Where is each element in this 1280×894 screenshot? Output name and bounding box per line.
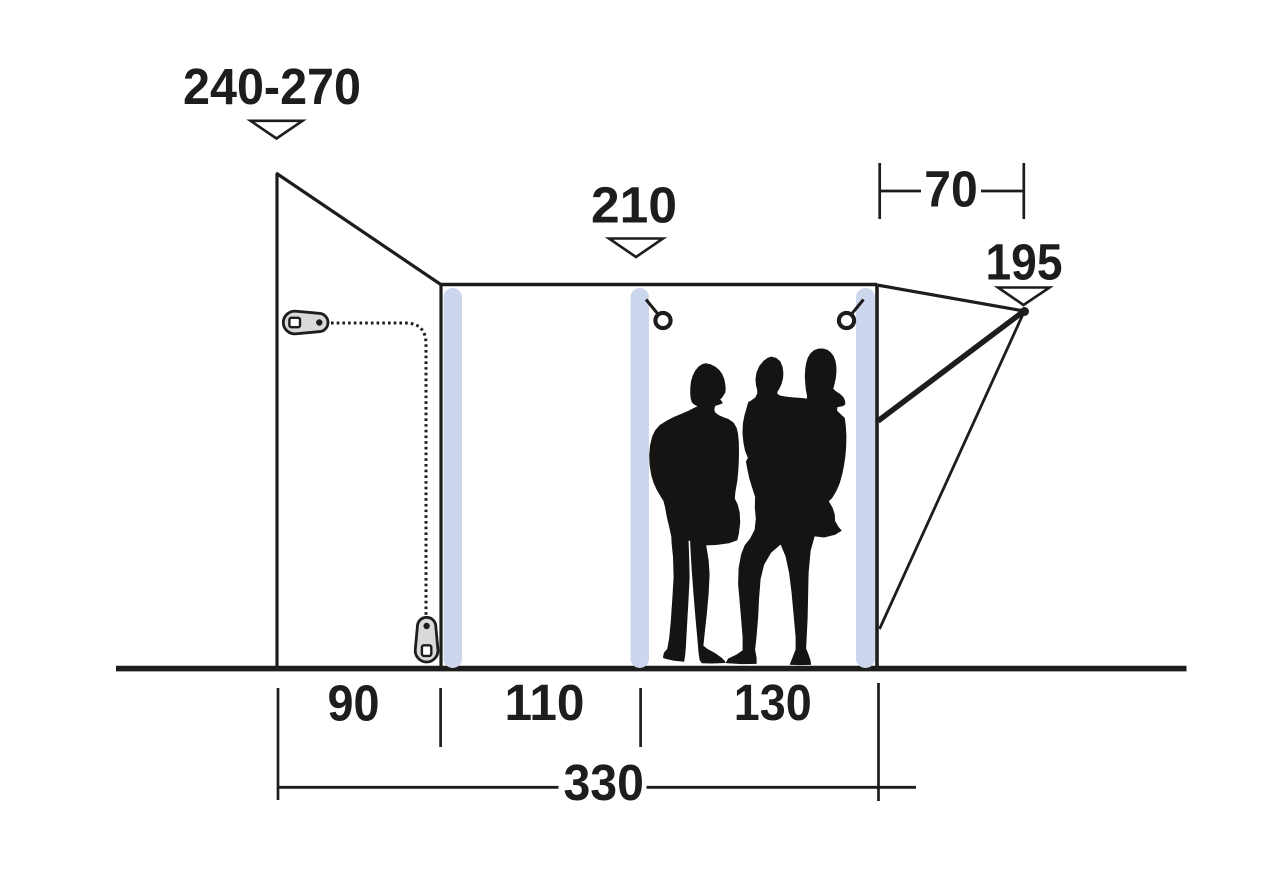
svg-text:330: 330 <box>563 754 644 811</box>
svg-text:195: 195 <box>986 234 1063 291</box>
svg-text:110: 110 <box>505 674 585 731</box>
svg-text:70: 70 <box>924 161 978 218</box>
svg-text:130: 130 <box>734 674 812 731</box>
svg-text:240-270: 240-270 <box>183 58 361 115</box>
svg-text:90: 90 <box>328 675 380 732</box>
svg-text:210: 210 <box>591 177 677 234</box>
